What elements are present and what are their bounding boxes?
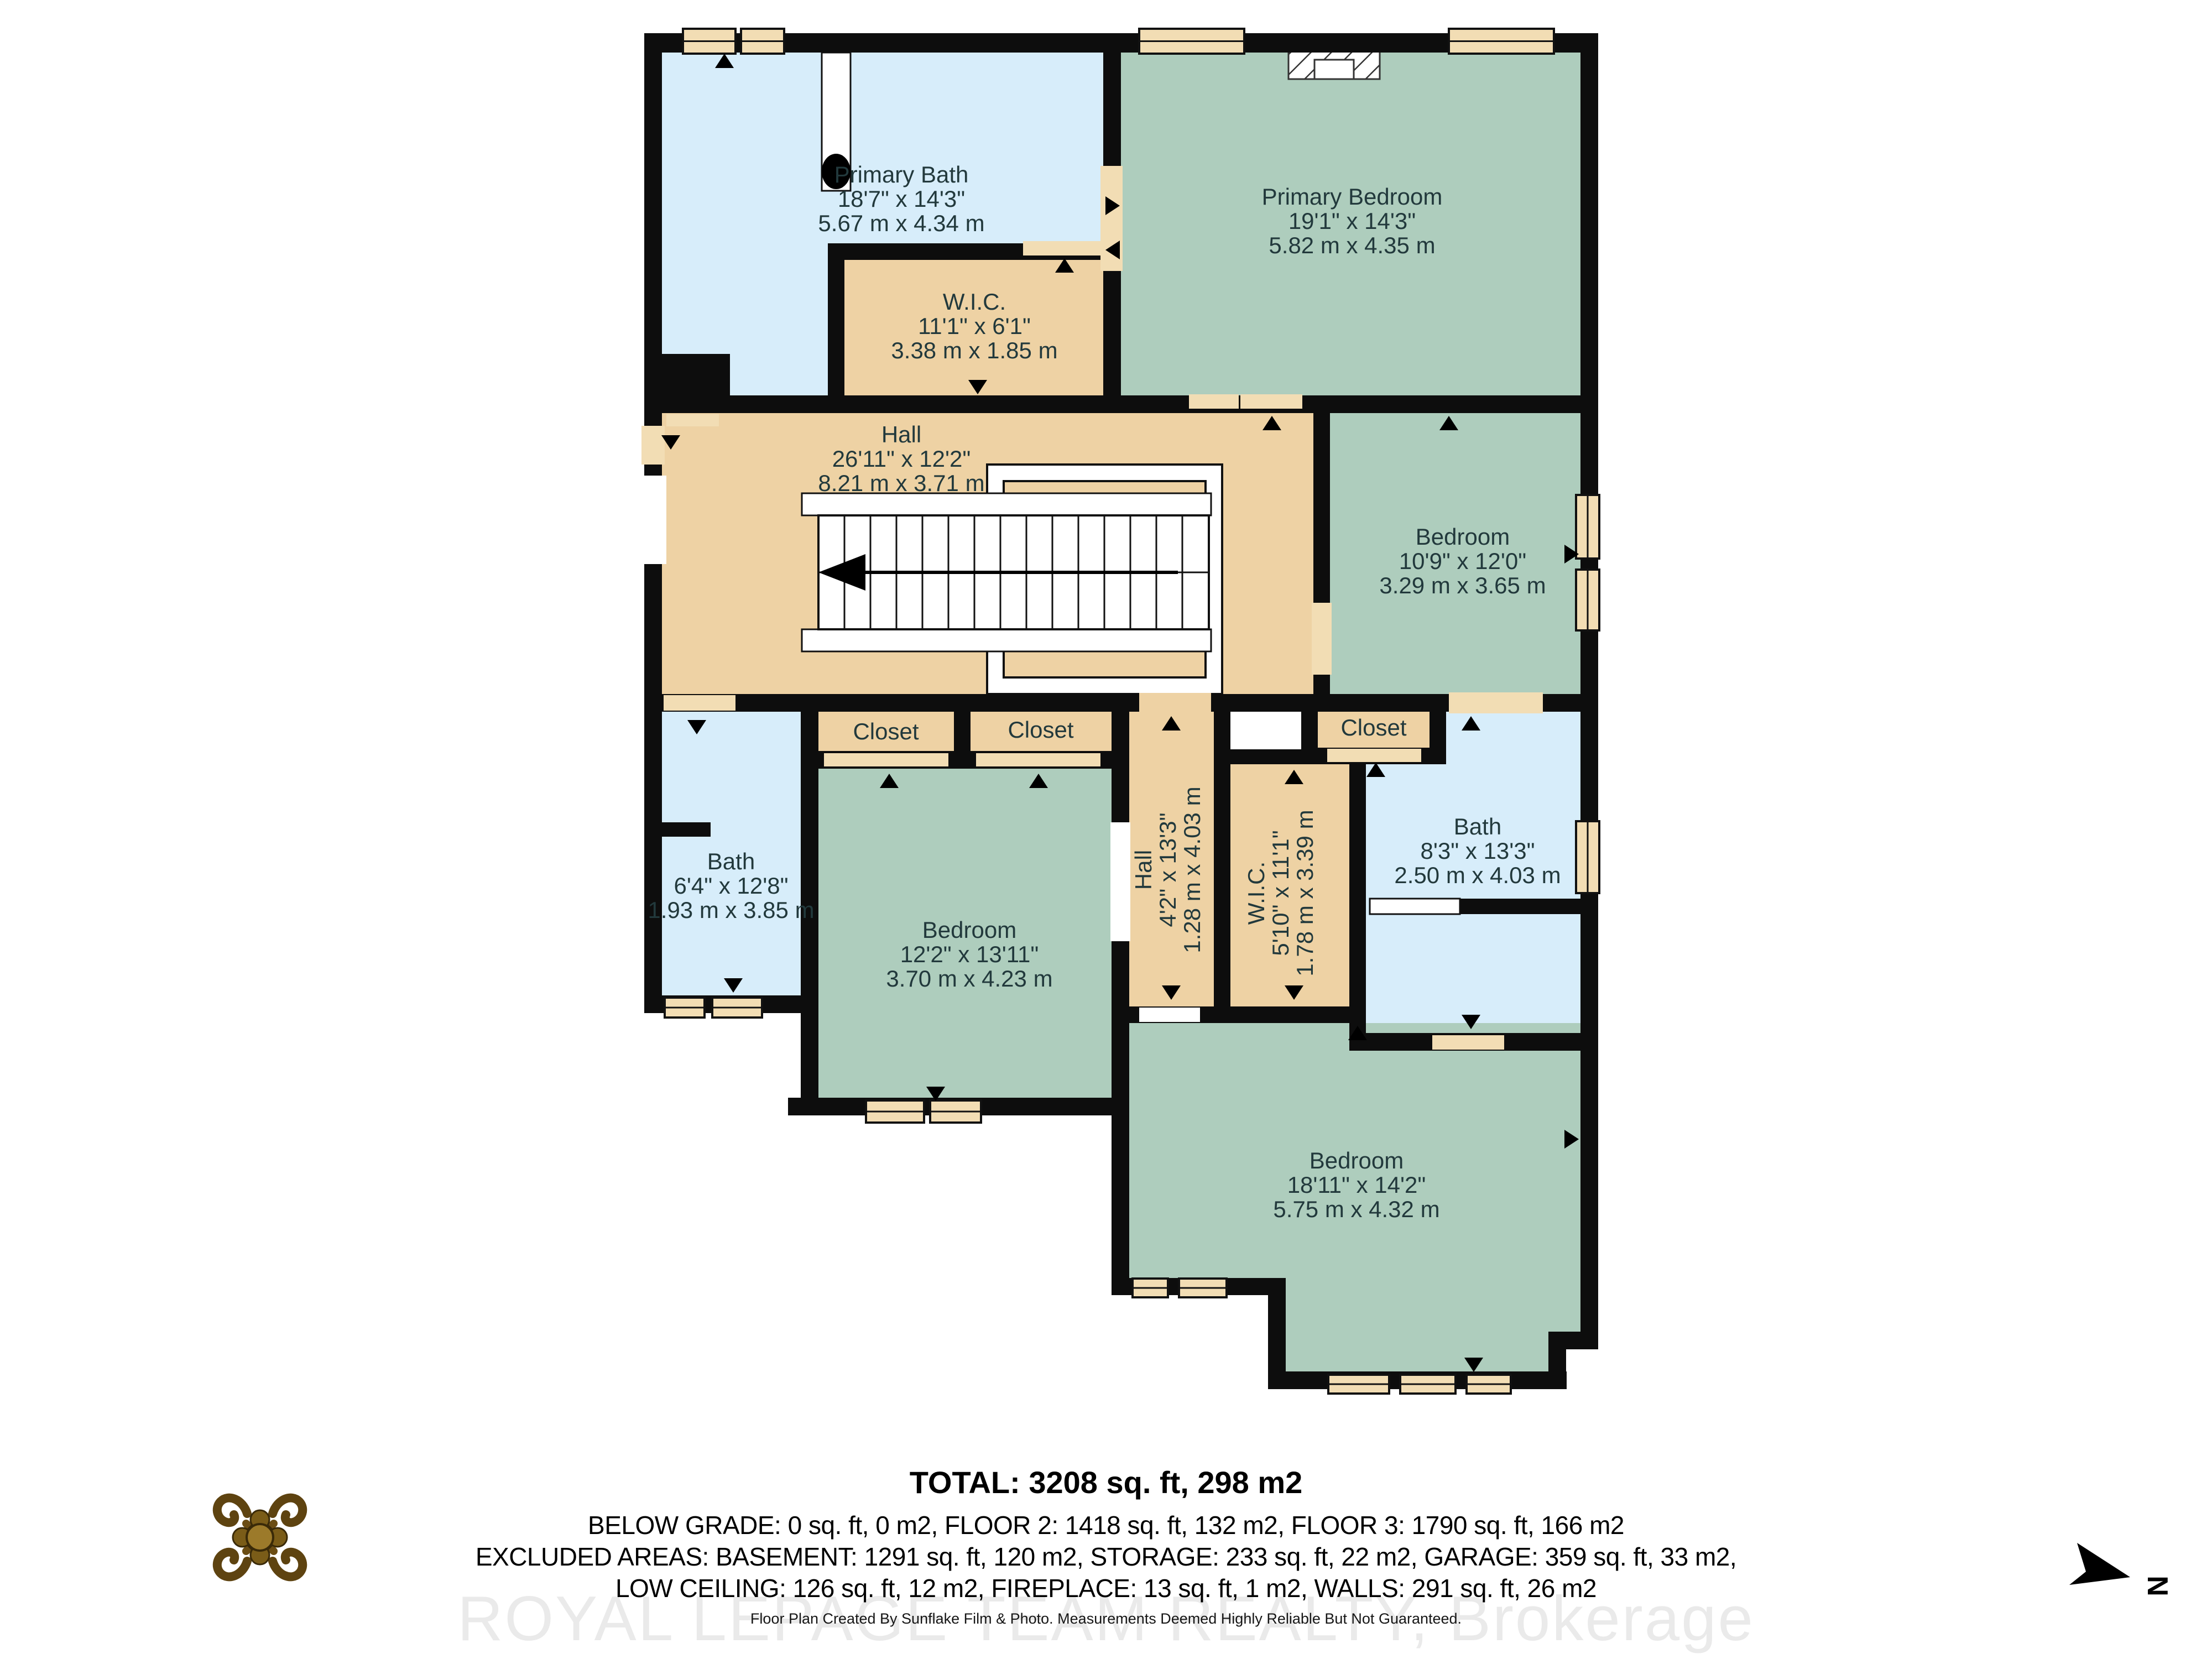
closet-door bbox=[824, 753, 948, 766]
closet-door bbox=[976, 753, 1100, 766]
wall-segment bbox=[1313, 413, 1330, 604]
wall-half bbox=[1460, 899, 1580, 914]
wall-step bbox=[1548, 1332, 1566, 1389]
door-opening bbox=[640, 476, 666, 564]
disclaimer: Floor Plan Created By Sunflake Film & Ph… bbox=[0, 1610, 2212, 1627]
door-opening bbox=[666, 414, 719, 426]
wall-closet-divider bbox=[954, 712, 971, 751]
wall-segment bbox=[1112, 711, 1129, 822]
room-label-closet-1: Closet bbox=[853, 718, 919, 744]
total-area-label: TOTAL: 3208 sq. ft, 298 m2 bbox=[0, 1464, 2212, 1500]
void-notch bbox=[1230, 712, 1301, 749]
floor-areas-line: BELOW GRADE: 0 sq. ft, 0 m2, FLOOR 2: 14… bbox=[0, 1510, 2212, 1540]
wall-segment bbox=[1349, 764, 1366, 1023]
wall-segment bbox=[828, 243, 844, 413]
wall-segment bbox=[1313, 675, 1330, 712]
wall-hall-top bbox=[644, 395, 1598, 413]
room-label-closet-3: Closet bbox=[1340, 714, 1406, 740]
stair-landing-bottom bbox=[802, 629, 1211, 651]
door-opening bbox=[1432, 1035, 1504, 1050]
wall-stub bbox=[644, 822, 711, 837]
wall-right bbox=[1580, 33, 1598, 1349]
fireplace-inner bbox=[1314, 60, 1354, 79]
wall-segment bbox=[1112, 940, 1129, 1295]
room-label-closet-2: Closet bbox=[1008, 717, 1073, 743]
door-opening bbox=[1139, 1008, 1200, 1022]
closet-door bbox=[1327, 749, 1421, 762]
door-opening bbox=[1023, 241, 1106, 255]
door-opening bbox=[1110, 822, 1130, 941]
door-opening bbox=[1240, 394, 1302, 409]
door-opening bbox=[641, 426, 665, 465]
excluded-areas-line-2: LOW CEILING: 126 sq. ft, 12 m2, FIREPLAC… bbox=[0, 1573, 2212, 1603]
floor-plan-page: Primary Bath18'7" x 14'3"5.67 m x 4.34 m… bbox=[0, 0, 2212, 1659]
half-wall-sill bbox=[1370, 899, 1460, 914]
door-opening bbox=[1449, 692, 1543, 713]
door-opening bbox=[1189, 394, 1239, 409]
room-label-primary-bedroom: Primary Bedroom19'1" x 14'3"5.82 m x 4.3… bbox=[1262, 184, 1443, 258]
door-opening bbox=[1139, 693, 1211, 713]
stair-landing-top bbox=[802, 493, 1211, 515]
excluded-areas-line: EXCLUDED AREAS: BASEMENT: 1291 sq. ft, 1… bbox=[0, 1542, 2212, 1572]
door-opening bbox=[664, 695, 735, 711]
floor-plan: Primary Bath18'7" x 14'3"5.67 m x 4.34 m… bbox=[0, 0, 2212, 1659]
room-label-primary-bath: Primary Bath18'7" x 14'3"5.67 m x 4.34 m bbox=[818, 161, 984, 236]
door-opening bbox=[1312, 603, 1332, 675]
